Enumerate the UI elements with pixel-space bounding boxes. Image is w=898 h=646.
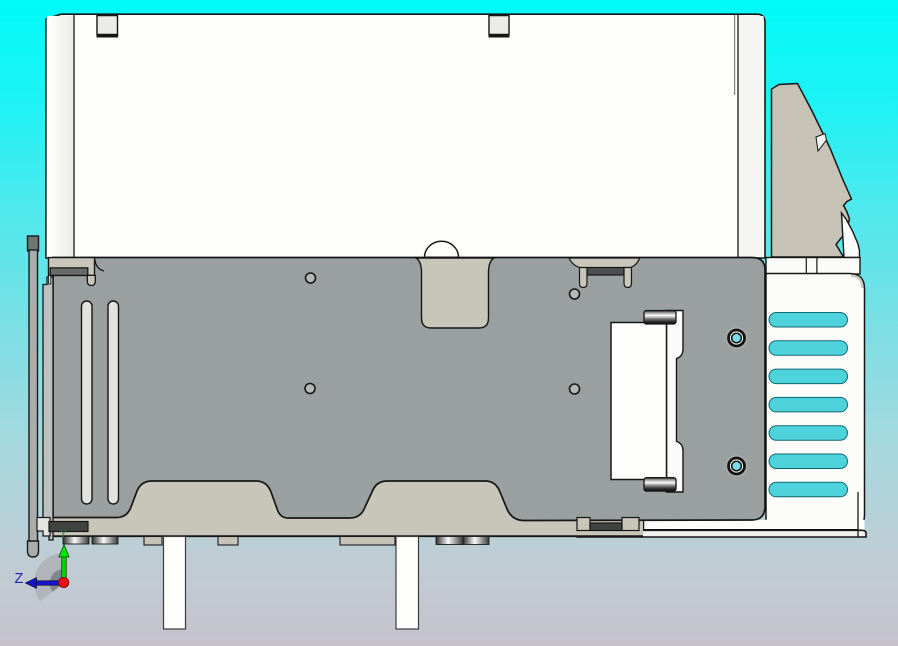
svg-text:Z: Z	[15, 571, 24, 587]
svg-text:Y: Y	[60, 529, 67, 540]
